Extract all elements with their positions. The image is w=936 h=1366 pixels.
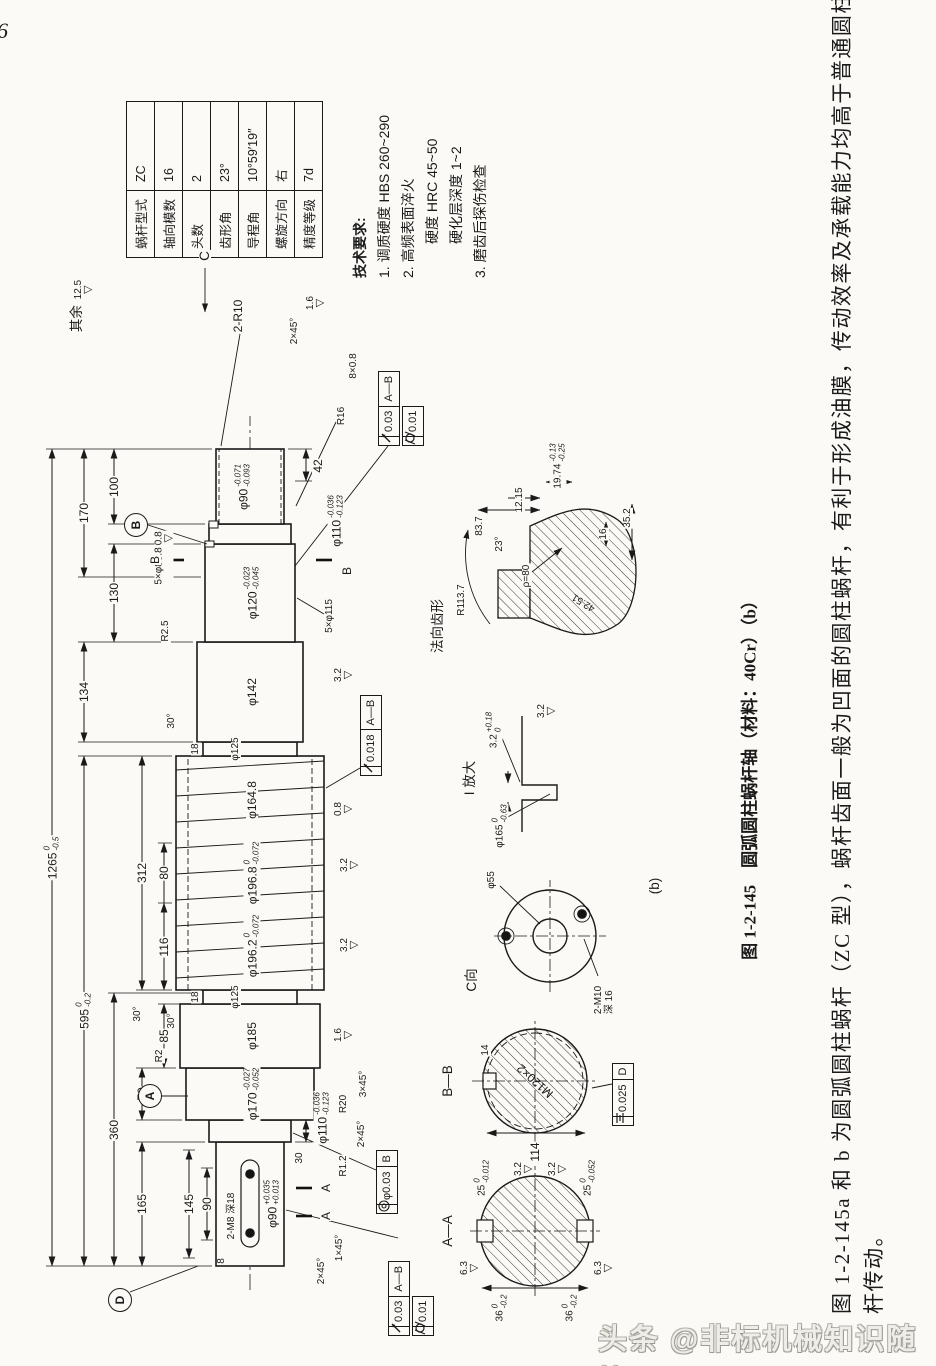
- dim-phi170: φ170-0.027-0.052: [244, 1067, 261, 1122]
- section-mark-a: A: [320, 1211, 332, 1221]
- fcf-concentricity: φ0.03 B: [376, 1150, 398, 1214]
- roughness-icon: 6.3▽: [594, 1261, 613, 1275]
- section-aa-title: A—A: [442, 1214, 454, 1248]
- fcf-runout-worm: 0.018 A—B: [360, 695, 382, 776]
- concentricity-icon: [377, 1204, 397, 1213]
- table-row: 蜗杆型式ZC: [127, 101, 155, 257]
- dim-m8-holes: 2-M8 深18: [227, 1192, 237, 1241]
- dim-overall-length: 12650-0.5: [44, 836, 61, 881]
- rotated-drawing-sheet: 其余 12.5▽ 蜗杆型式ZC 轴向模数16 头数2 齿形角23° 导程角10°…: [0, 0, 936, 1366]
- roughness-icon: 3.2▽: [340, 938, 359, 952]
- cylindricity-icon: [403, 436, 423, 445]
- dim-25-top: 250-0.012: [474, 1159, 491, 1197]
- roughness-3-2: 3.2▽: [337, 857, 359, 875]
- roughness-3-2: 3.2▽: [331, 667, 353, 685]
- figure-caption: 图 1-2-145 圆弧圆柱蜗杆轴（材料：40Cr）（b）: [736, 592, 761, 960]
- fcf-runout-journal: 0.03 A—B: [378, 371, 400, 446]
- tech-req-item: 2. 高频表面淬火: [396, 8, 420, 278]
- dim-145: 145: [183, 1193, 195, 1215]
- body-text-line2: 杆传动。: [858, 1224, 888, 1314]
- dim-r16: R16: [337, 406, 347, 426]
- table-row: 螺旋方向右: [267, 101, 295, 257]
- dim-12-15: 12.15: [515, 486, 525, 513]
- section-mark-a: A: [320, 1183, 332, 1193]
- dim-19-74: 19.74-0.13-0.25: [550, 442, 567, 489]
- roughness-3-2: 3.2▽: [511, 1161, 533, 1179]
- detail-i-view: [508, 716, 557, 832]
- fcf-symmetry: 0.025 D: [612, 1063, 634, 1126]
- dim-groove-3-2: 3.2+0.180: [486, 711, 503, 749]
- dim-36: 360-0.2: [562, 1294, 579, 1323]
- fcf-runout-left: 0.03 A—B: [388, 1261, 410, 1336]
- dim-30: 30: [295, 1151, 305, 1164]
- runout-icon: [389, 1326, 409, 1335]
- roughness-3-2: 3.2▽: [545, 1161, 567, 1179]
- surface-finish-note: 其余 12.5▽: [71, 279, 93, 333]
- table-row: 轴向模数16: [155, 101, 183, 257]
- dim-relief-8x0-8: 8×0.8: [349, 352, 359, 379]
- dim-2-r10: 2-R10: [232, 299, 244, 334]
- table-row: 齿形角23°: [211, 101, 239, 257]
- dim-18: 18: [191, 990, 201, 1003]
- dim-phi90-left: φ90+0.035+0.013: [264, 1179, 281, 1229]
- dim-r1-2: R1.2: [339, 1154, 349, 1177]
- dim-phi185: φ185: [246, 1021, 258, 1051]
- table-row: 导程角10°59′19″: [239, 101, 267, 257]
- chamfer-2x45: 2×45°: [317, 1257, 327, 1286]
- cylindricity-icon: [413, 1326, 433, 1335]
- body-text-line1: 图 1-2-145a 和 b 为圆弧圆柱蜗杆（ZC 型），蜗杆齿面一般为凹面的圆…: [826, 0, 856, 1314]
- runout-icon: [379, 436, 399, 445]
- table-row: 精度等级7d: [295, 101, 323, 257]
- chamfer-2x45: 2×45°: [290, 317, 300, 346]
- dim-165: 165: [136, 1193, 148, 1215]
- tech-req-item: 硬化层深度 1~2: [444, 8, 468, 244]
- roughness-icon: 0.8▽: [334, 802, 353, 816]
- dim-85: 85: [158, 1028, 170, 1043]
- dim-phi196-2: φ196.20-0.072: [244, 914, 261, 979]
- dim-8: 8: [217, 1257, 227, 1265]
- angle-23: 23°: [495, 535, 505, 552]
- dim-r2: R2: [155, 1049, 165, 1064]
- dim-134: 134: [78, 681, 90, 703]
- dim-25-bottom: 250-0.052: [580, 1159, 597, 1197]
- datum-b: B: [124, 513, 148, 537]
- dim-phi142: φ142: [246, 677, 258, 707]
- dim-100: 100: [108, 476, 120, 498]
- view-c-title: C向: [466, 967, 478, 992]
- dim-r20: R20: [339, 1094, 349, 1114]
- dim-130: 130: [108, 582, 120, 604]
- roughness-icon: 3.2▽: [548, 1162, 567, 1176]
- tech-req-item: 1. 调质硬度 HBS 260~290: [372, 8, 396, 278]
- roughness-6-3: 6.3▽: [591, 1260, 613, 1278]
- dim-80: 80: [158, 865, 170, 880]
- technical-requirements: 技术要求: 1. 调质硬度 HBS 260~290 2. 高频表面淬火 硬度 H…: [348, 8, 492, 278]
- roughness-icon: 1.6▽: [334, 1028, 353, 1042]
- datum-d: D: [108, 1288, 132, 1312]
- page-number: 6: [0, 18, 8, 44]
- scanned-book-page: 其余 12.5▽ 蜗杆型式ZC 轴向模数16 头数2 齿形角23° 导程角10°…: [0, 0, 936, 1366]
- tech-req-title: 技术要求:: [348, 8, 372, 278]
- dim-phi165: φ1650-0.63: [492, 803, 509, 848]
- chamfer-1x45: 1×45°: [335, 1234, 345, 1263]
- view-c-arrow-label: C: [199, 250, 211, 262]
- roughness-1-6: 1.6▽: [303, 295, 325, 313]
- roughness-icon: 3.2▽: [334, 668, 353, 682]
- dim-phi110-right: φ110-0.036-0.123: [328, 494, 345, 548]
- angle-30: 30°: [167, 1012, 177, 1029]
- dim-16: 16: [599, 527, 609, 540]
- dim-42: 42: [312, 458, 324, 473]
- section-mark-b: B: [341, 566, 353, 576]
- dim-595: 5950-0.2: [76, 992, 93, 1030]
- dim-phi120: φ120-0.023-0.045: [244, 566, 261, 621]
- dim-360: 360: [108, 1119, 120, 1141]
- dim-phi115: 5×φ115: [325, 598, 335, 634]
- roughness-icon: 3.2▽: [514, 1162, 533, 1176]
- roughness-3-2: 3.2▽: [534, 703, 556, 721]
- roughness-0-8: 0.8▽: [331, 801, 353, 819]
- tooth-profile-title: 法向齿形: [432, 598, 444, 654]
- dim-116: 116: [158, 936, 170, 957]
- datum-a: A: [138, 1084, 162, 1108]
- dim-phi110-left: φ110-0.036-0.123: [314, 1091, 331, 1145]
- runout-icon: [361, 766, 381, 775]
- tech-req-item: 3. 磨齿后探伤检查: [468, 8, 492, 278]
- dim-83-7: 83.7: [475, 515, 485, 536]
- roughness-icon: 3.2▽: [340, 858, 359, 872]
- section-bb-title: B—B: [442, 1064, 454, 1098]
- section-mark-b: B: [149, 555, 161, 565]
- angle-30: 30°: [133, 1005, 143, 1022]
- tooth-profile-view: [466, 482, 636, 634]
- roughness-icon: 6.3▽: [460, 1261, 479, 1275]
- watermark: 头条 @非标机械知识随笔: [598, 1316, 936, 1366]
- chamfer-2x45: 2×45°: [357, 1120, 367, 1149]
- sub-figure-label: (b): [649, 877, 661, 896]
- detail-i-title: I 放大: [464, 760, 476, 797]
- table-row: 头数2: [183, 101, 211, 257]
- dim-m10-holes: 2-M10深 16: [593, 985, 615, 1015]
- dim-18: 18: [191, 742, 201, 755]
- dim-r113-7: R113.7: [457, 583, 467, 617]
- roughness-icon: 3.2▽: [537, 704, 556, 718]
- dim-phi125: φ125: [231, 984, 241, 1009]
- fcf-cylindricity: 0.01: [402, 406, 424, 446]
- dim-114: 114: [529, 1141, 541, 1162]
- roughness-icon: 12.5▽: [74, 280, 93, 299]
- dim-14: 14: [481, 1043, 491, 1056]
- dim-phi125: φ125: [231, 736, 241, 761]
- dim-rho-80: ρ=80: [522, 564, 532, 589]
- dim-170: 170: [78, 502, 90, 524]
- tech-req-item: 硬度 HRC 45~50: [420, 8, 444, 244]
- roughness-6-3: 6.3▽: [457, 1260, 479, 1278]
- dim-36: 360-0.2: [492, 1294, 509, 1323]
- roughness-3-2: 3.2▽: [337, 937, 359, 955]
- dim-phi90-right: φ90-0.071-0.093: [235, 463, 252, 511]
- dim-phi196-8: φ196.80-0.072: [244, 841, 261, 906]
- dim-r2-5: R2.5: [161, 619, 171, 642]
- dim-phi55: φ55: [487, 870, 497, 890]
- roughness-icon: 0.8▽: [155, 531, 174, 545]
- angle-30: 30°: [167, 712, 177, 729]
- worm-parameter-table: 蜗杆型式ZC 轴向模数16 头数2 齿形角23° 导程角10°59′19″ 螺旋…: [126, 101, 323, 258]
- dim-90: 90: [201, 1196, 213, 1211]
- dim-phi164-8: φ164.8: [246, 780, 258, 820]
- dim-312: 312: [136, 862, 148, 884]
- roughness-icon: 1.6▽: [306, 296, 325, 310]
- chamfer-3x45: 3×45°: [359, 1070, 369, 1099]
- fcf-cylindricity-left: 0.01: [412, 1296, 434, 1336]
- dim-35-2: 35.2: [623, 507, 633, 528]
- symmetry-icon: [613, 1116, 633, 1125]
- roughness-1-6: 1.6▽: [331, 1027, 353, 1045]
